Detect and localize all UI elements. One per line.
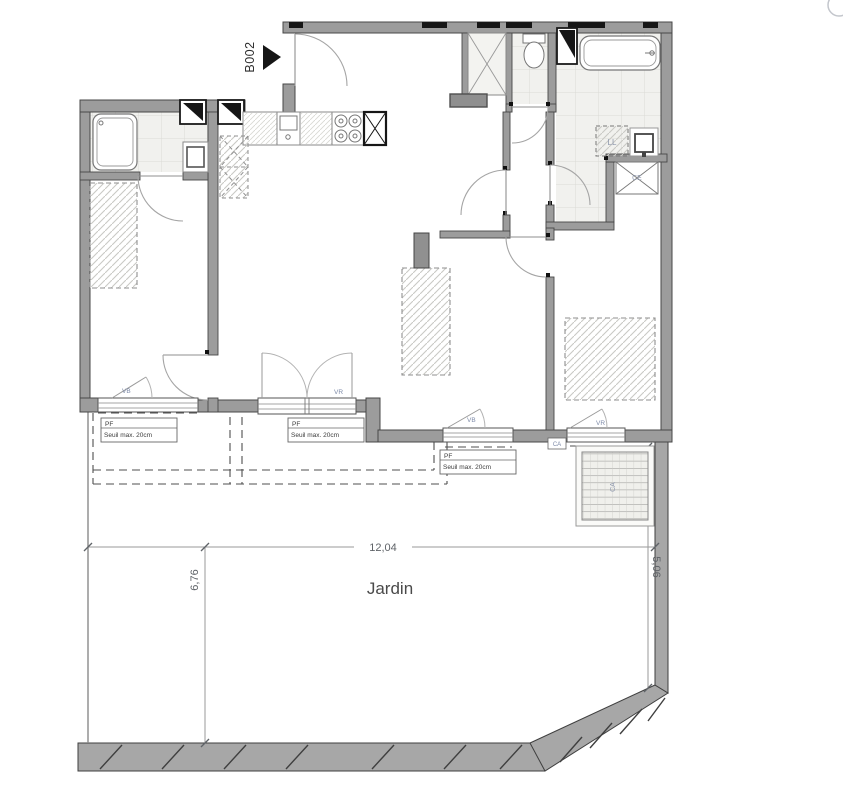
dim-left-depth-text: 6,76 <box>189 569 201 590</box>
washing-machine: LL <box>596 126 628 156</box>
water-heater-box: CE <box>616 162 658 194</box>
threshold-code: PF <box>444 453 452 460</box>
bedroom1-door <box>163 355 208 400</box>
living-closet <box>402 268 450 375</box>
bathtub-2 <box>580 36 660 70</box>
light-well-grille: CA <box>576 446 654 526</box>
threshold-text: Seuil max. 20cm <box>443 464 491 471</box>
floor-plan-page: 12,04 6,76 5,06 Jardin CA <box>0 0 843 800</box>
threshold-code: PF <box>105 421 113 428</box>
bathtub-1 <box>93 114 137 170</box>
hallway-door <box>461 170 506 215</box>
washbasin-1 <box>183 142 208 172</box>
garden: 12,04 6,76 5,06 Jardin CA <box>78 404 668 771</box>
bedroom1-window <box>98 377 198 412</box>
living-french-door <box>258 353 356 414</box>
bedroom1-window-label: VB <box>122 388 131 395</box>
light-well-tag-label: CA <box>553 442 561 448</box>
bed-bedroom2 <box>565 318 655 400</box>
threshold-note-3: PF Seuil max. 20cm <box>440 450 516 474</box>
wc <box>523 34 545 68</box>
ui-artifact-circle <box>828 0 843 16</box>
dim-right-depth-text: 5,06 <box>650 556 662 577</box>
awning-window-kitchen <box>218 100 244 124</box>
washbasin-2 <box>630 128 658 157</box>
duct-column <box>414 233 429 268</box>
floor-plan-drawing: 12,04 6,76 5,06 Jardin CA <box>0 0 843 800</box>
threshold-code: PF <box>292 421 300 428</box>
kitchen <box>220 112 386 198</box>
bedroom2-door <box>506 237 546 277</box>
entry-step <box>450 94 487 107</box>
entrance-arrow-icon <box>263 45 281 70</box>
light-well-tag: CA <box>548 438 566 449</box>
kitchen-tall-cupboard <box>220 136 248 198</box>
dim-width-text: 12,04 <box>369 542 397 554</box>
living-window <box>443 409 513 442</box>
french-door-label: VR <box>334 389 343 396</box>
wc-door <box>512 107 548 143</box>
threshold-note-1: PF Seuil max. 20cm <box>101 418 177 442</box>
washing-machine-label: LL <box>608 138 617 147</box>
bed-bedroom1 <box>90 183 137 288</box>
threshold-note-2: PF Seuil max. 20cm <box>288 418 364 442</box>
threshold-text: Seuil max. 20cm <box>291 432 339 439</box>
bathroom1-door <box>138 176 183 221</box>
unit-tag: B002 <box>243 41 281 72</box>
threshold-text: Seuil max. 20cm <box>104 432 152 439</box>
garden-label: Jardin <box>367 579 413 598</box>
kitchen-appliance-box <box>364 112 386 145</box>
garden-dashed-lines <box>93 404 622 484</box>
bedroom2-window-label: VR <box>596 420 605 427</box>
bathroom2-lobe-floor <box>556 154 606 222</box>
toilet <box>523 34 545 68</box>
light-well-grille-label: CA <box>610 482 617 492</box>
entry-closet <box>468 33 506 95</box>
unit-label: B002 <box>243 41 257 72</box>
living-window-label: VB <box>467 417 476 424</box>
awning-window-bathroom1 <box>180 100 206 124</box>
entrance-door <box>295 34 347 86</box>
awning-window-bathroom2 <box>557 28 577 64</box>
water-heater-label: CE <box>632 175 642 182</box>
